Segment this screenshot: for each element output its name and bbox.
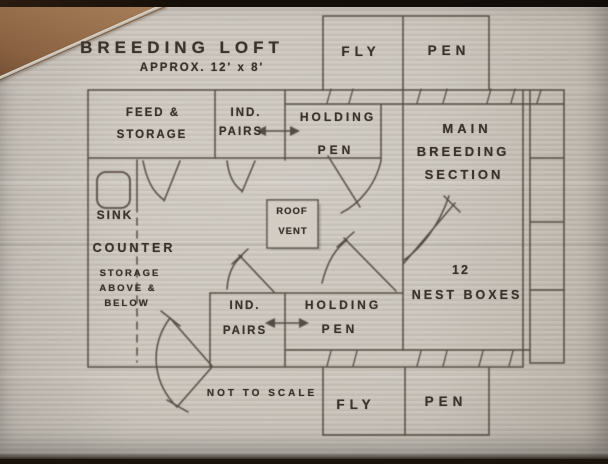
door-swing-ind-pairs-bottom-icon — [227, 249, 274, 292]
label-ind-pairs-bottom: IND. — [230, 300, 261, 312]
label-fly-pen-top-pen: PEN — [428, 43, 471, 58]
label-main-breeding: MAIN — [442, 121, 491, 136]
label-feed-storage: FEED & — [126, 107, 180, 119]
door-swing-ind-pairs-top-icon — [227, 161, 255, 192]
frame-bottom-strip — [0, 453, 608, 464]
door-swing-holding-pen-bottom-icon — [322, 232, 396, 291]
door-swing-main-breeding-icon — [404, 196, 460, 263]
label-holding-pen-top: HOLDING — [300, 110, 376, 124]
label-main-breeding: BREEDING — [417, 144, 510, 159]
label-roof-vent: ROOF — [276, 206, 307, 217]
label-storage-note: STORAGE — [100, 268, 161, 279]
drawing-title: BREEDING LOFT — [80, 38, 284, 58]
drawing-subtitle: APPROX. 12' x 8' — [140, 62, 264, 74]
label-fly-pen-bottom-pen: PEN — [425, 394, 468, 409]
label-storage-note: ABOVE & — [99, 283, 156, 294]
sink-icon — [97, 172, 130, 208]
passage-arrow-bottom-icon — [265, 318, 309, 328]
label-sink: SINK — [97, 208, 134, 222]
label-fly-pen-top-fly: FLY — [341, 44, 380, 59]
label-ind-pairs-bottom: PAIRS — [223, 325, 267, 337]
label-fly-pen-bottom-fly: FLY — [336, 397, 375, 412]
door-swing-feed-storage-icon — [143, 161, 180, 201]
label-nest-boxes: NEST BOXES — [412, 288, 523, 302]
label-storage-note: BELOW — [104, 298, 149, 309]
door-swing-holding-pen-top-icon — [328, 156, 381, 213]
frame-top-strip — [0, 0, 608, 7]
label-not-to-scale: NOT TO SCALE — [207, 388, 317, 399]
label-holding-pen-top: PEN — [318, 143, 355, 157]
label-ind-pairs-top: PAIRS — [219, 126, 263, 138]
label-holding-pen-bottom: HOLDING — [305, 298, 381, 312]
label-ind-pairs-top: IND. — [231, 107, 262, 119]
label-main-breeding: SECTION — [425, 167, 504, 182]
photo-frame: BREEDING LOFT APPROX. 12' x 8' FLY PEN F… — [0, 0, 608, 464]
label-counter: COUNTER — [93, 241, 176, 255]
label-feed-storage: STORAGE — [117, 129, 188, 141]
nest-box-column — [523, 90, 564, 363]
label-holding-pen-bottom: PEN — [322, 322, 359, 336]
entry-door-swing-icon — [156, 311, 212, 412]
label-roof-vent: VENT — [278, 226, 307, 237]
label-nest-boxes-count: 12 — [452, 263, 470, 277]
